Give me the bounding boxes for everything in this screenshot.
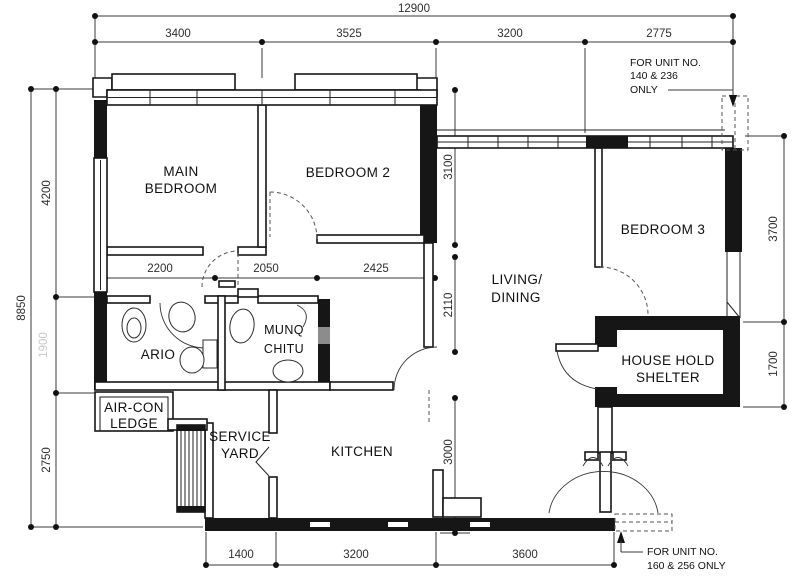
bath1-wc (166, 299, 199, 335)
bedroom3-door-arc (600, 267, 648, 315)
bath1-cistern (203, 340, 217, 368)
kitchen-door-arc (394, 347, 437, 390)
shelter-door-leaf (556, 344, 598, 351)
room-label-aircon-line2: LEDGE (110, 416, 158, 431)
bath2-basin (273, 360, 303, 382)
dim-overall-width: 12900 (398, 3, 430, 15)
room-label-main-bedroom-line2: BEDROOM (145, 181, 218, 196)
dim-vertical-3: 3000 (443, 439, 455, 465)
note-unit-top-line1: FOR UNIT NO. (630, 57, 701, 69)
room-label-shelter-line2: SHELTER (636, 370, 700, 385)
note-text: FOR UNIT NO. 140 & 236 ONLY FOR UNIT NO.… (630, 57, 726, 572)
note-unit-bottom-line2: 160 & 256 ONLY (647, 560, 726, 572)
entrance-cabinet-vertical (433, 470, 443, 517)
room-label-bath2-line2: CHITU (264, 342, 304, 356)
room-label-shelter-line1: HOUSE HOLD (621, 353, 714, 368)
arrow-down-unit-140 (729, 95, 737, 107)
dim-left-overall: 8850 (16, 295, 28, 321)
dim-top-2: 3525 (336, 28, 362, 40)
room-label-bedroom3: BEDROOM 3 (621, 222, 706, 237)
dim-bottom-1: 1400 (228, 549, 254, 561)
dim-right-2: 1700 (768, 351, 780, 377)
room-label-main-bedroom-line1: MAIN (163, 164, 198, 179)
bedroom2-door-arc (270, 192, 317, 239)
dim-vertical-1: 3100 (443, 154, 455, 180)
floor-plan-drawing: 12900 3400 3525 3200 2775 8850 4200 1900… (0, 0, 800, 576)
dim-left-3: 2750 (41, 447, 53, 473)
dim-vertical-2: 2110 (443, 293, 455, 318)
room-label-living-line2: DINING (491, 290, 541, 305)
entrance-door-leaf (600, 452, 611, 512)
wall-left-top (94, 100, 107, 158)
dim-right-1: 3700 (768, 216, 780, 242)
note-unit-top-line2: 140 & 236 (630, 70, 678, 82)
room-label-service-yard-line1: SERVICE (209, 429, 271, 444)
bath2-wc (228, 307, 256, 344)
wall-bath-right (318, 299, 330, 390)
room-labels: MAIN BEDROOM BEDROOM 2 BEDROOM 3 LIVING/… (104, 164, 715, 461)
room-label-bath2-line1: MUNQ (264, 323, 304, 337)
bay-ledge-bedroom2 (295, 74, 417, 90)
bathroom-fixtures (122, 299, 306, 382)
dim-bottom-3: 3600 (512, 549, 538, 561)
room-label-bedroom2: BEDROOM 2 (306, 165, 391, 180)
wall-left-bath (94, 292, 107, 390)
note-unit-bottom-line1: FOR UNIT NO. (647, 546, 718, 558)
dim-corridor-2: 2050 (253, 263, 279, 275)
room-label-aircon-line1: AIR-CON (104, 400, 164, 415)
note-unit-top-line3: ONLY (630, 84, 658, 96)
shelter-door-arc (557, 351, 597, 389)
dim-top-3: 3200 (497, 28, 523, 40)
floor-plan-page: 12900 3400 3525 3200 2775 8850 4200 1900… (0, 0, 800, 576)
wall-right-bedroom3 (725, 148, 742, 252)
bath1-wc2 (180, 347, 204, 373)
dim-left-2-faded: 1900 (38, 332, 50, 358)
wall-bedroom2-right (420, 97, 437, 243)
wall-bottom (205, 518, 615, 531)
bay-ledge-main-bedroom (112, 74, 235, 90)
room-label-kitchen: KITCHEN (331, 444, 393, 459)
dim-top-1: 3400 (165, 28, 191, 40)
bath2-door (238, 289, 258, 297)
room-label-living-line1: LIVING/ (492, 272, 543, 287)
entrance-cabinet-horizontal (443, 498, 481, 517)
dim-corridor-1: 2200 (147, 263, 173, 275)
dim-left-1: 4200 (41, 180, 53, 206)
room-label-service-yard-line2: YARD (221, 446, 259, 461)
room-label-bath1: ARIO (141, 347, 176, 362)
dim-bottom-2: 3200 (343, 549, 369, 561)
dim-top-4: 2775 (646, 28, 672, 40)
bath-window (318, 327, 330, 344)
dim-corridor-3: 2425 (363, 263, 389, 275)
